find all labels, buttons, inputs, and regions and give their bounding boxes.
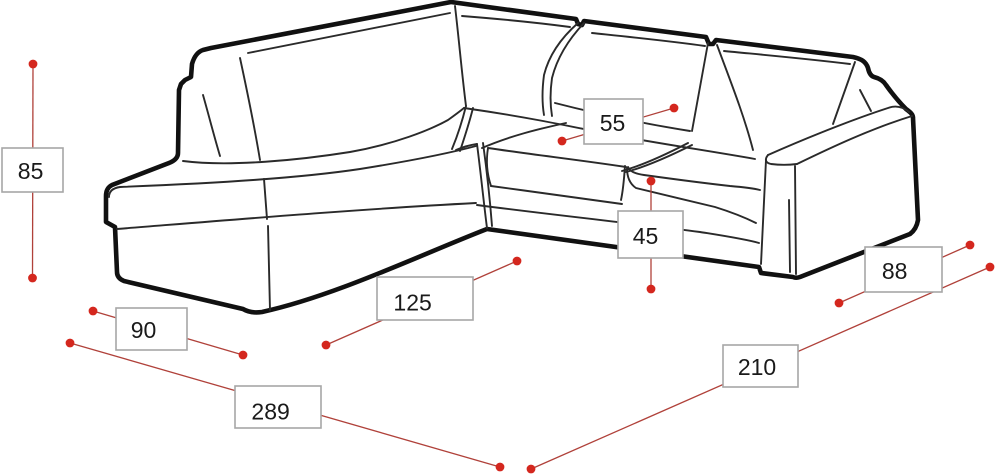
svg-text:90: 90 [131, 317, 157, 343]
svg-text:125: 125 [393, 290, 431, 316]
svg-text:88: 88 [882, 258, 908, 284]
svg-text:289: 289 [251, 399, 289, 425]
svg-text:45: 45 [633, 223, 659, 249]
svg-text:85: 85 [18, 158, 44, 184]
svg-text:210: 210 [738, 354, 776, 380]
svg-text:55: 55 [600, 110, 626, 136]
